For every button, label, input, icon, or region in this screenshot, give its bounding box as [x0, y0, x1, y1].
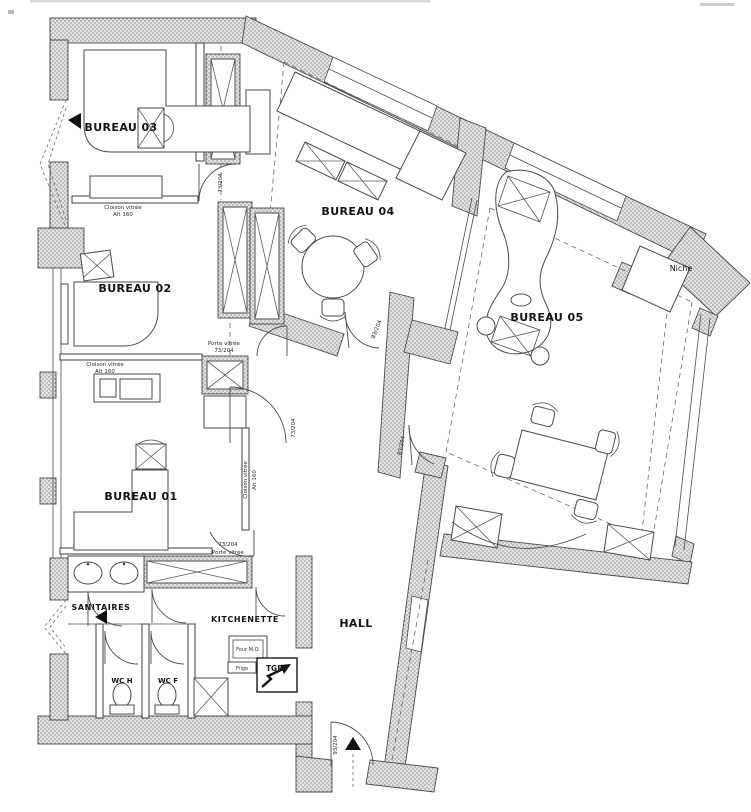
room-label-hall: HALL: [339, 617, 372, 630]
label-frigo: Frigo: [236, 666, 248, 672]
closet-middle-2: [250, 208, 284, 324]
closet-middle-1: [218, 202, 252, 318]
label-niche: Niche: [670, 264, 693, 273]
label-cloison-b02: Cloison vitrée: [86, 361, 124, 368]
room-label-bureau03: BUREAU 03: [84, 121, 157, 134]
floor-plan-drawing: BUREAU 03 BUREAU 02 BUREAU 01 BUREAU 04 …: [0, 0, 751, 812]
room-label-bureau05: BUREAU 05: [510, 311, 583, 324]
door-sanitaires-2: [152, 589, 186, 623]
label-73-corridor: 73/204: [214, 348, 234, 354]
label-four-mo: Four M.O.: [236, 647, 260, 653]
label-alt-b01: Alt 160: [252, 470, 258, 490]
arrow-west-bureau03-icon: [68, 113, 81, 129]
label-73-b01: 73/204: [218, 542, 238, 548]
toilet-wc-f: [155, 683, 179, 714]
duct-wc: [194, 678, 228, 716]
label-cloison-b01: Cloison vitrée: [242, 461, 249, 499]
door-kitchenette: [256, 587, 285, 616]
label-73-b03: 73/204: [218, 173, 224, 193]
round-table-bureau04: [285, 222, 384, 321]
door-wc-f: [151, 631, 184, 664]
label-93-entrance: 93/204: [333, 735, 339, 755]
entrance-arrow-icon: [345, 737, 361, 750]
label-alt-b02: Alt 160: [95, 369, 115, 375]
desk-bureau01: [74, 374, 168, 550]
label-porte-vitree-corridor: Porte vitrée: [208, 340, 240, 347]
room-label-bureau04: BUREAU 04: [321, 205, 394, 218]
label-cloison-b03: Cloison vitrée: [104, 204, 142, 211]
room-label-bureau01: BUREAU 01: [104, 490, 177, 503]
room-label-bureau02: BUREAU 02: [98, 282, 171, 295]
label-73-b02: 73/204: [291, 418, 297, 438]
label-alt-b03: Alt 160: [113, 212, 133, 218]
label-tgbt: TGBT: [266, 664, 289, 673]
desk-bureau05: [477, 170, 558, 365]
room-label-sanitaires: SANITAIRES: [71, 603, 130, 612]
room-label-wc-f: WC F: [158, 677, 178, 685]
scan-artifacts: [8, 0, 734, 14]
closet-sanitaires: [142, 556, 252, 588]
arrow-west-sanitaires-icon: [95, 610, 107, 624]
furniture: [61, 50, 622, 714]
label-porte-vitree-b01: Porte vitrée: [212, 549, 244, 556]
table-bureau05: [488, 400, 622, 526]
sinks: [68, 556, 144, 592]
toilet-wc-h: [110, 683, 134, 714]
room-label-kitchenette: KITCHENETTE: [211, 615, 279, 624]
floor-plan-page: BUREAU 03 BUREAU 02 BUREAU 01 BUREAU 04 …: [0, 0, 751, 812]
duct-box: [202, 356, 248, 428]
door-wc-h: [105, 631, 138, 664]
room-label-wc-h: WC H: [111, 677, 132, 685]
label-83-b04: 83/204: [371, 319, 384, 340]
